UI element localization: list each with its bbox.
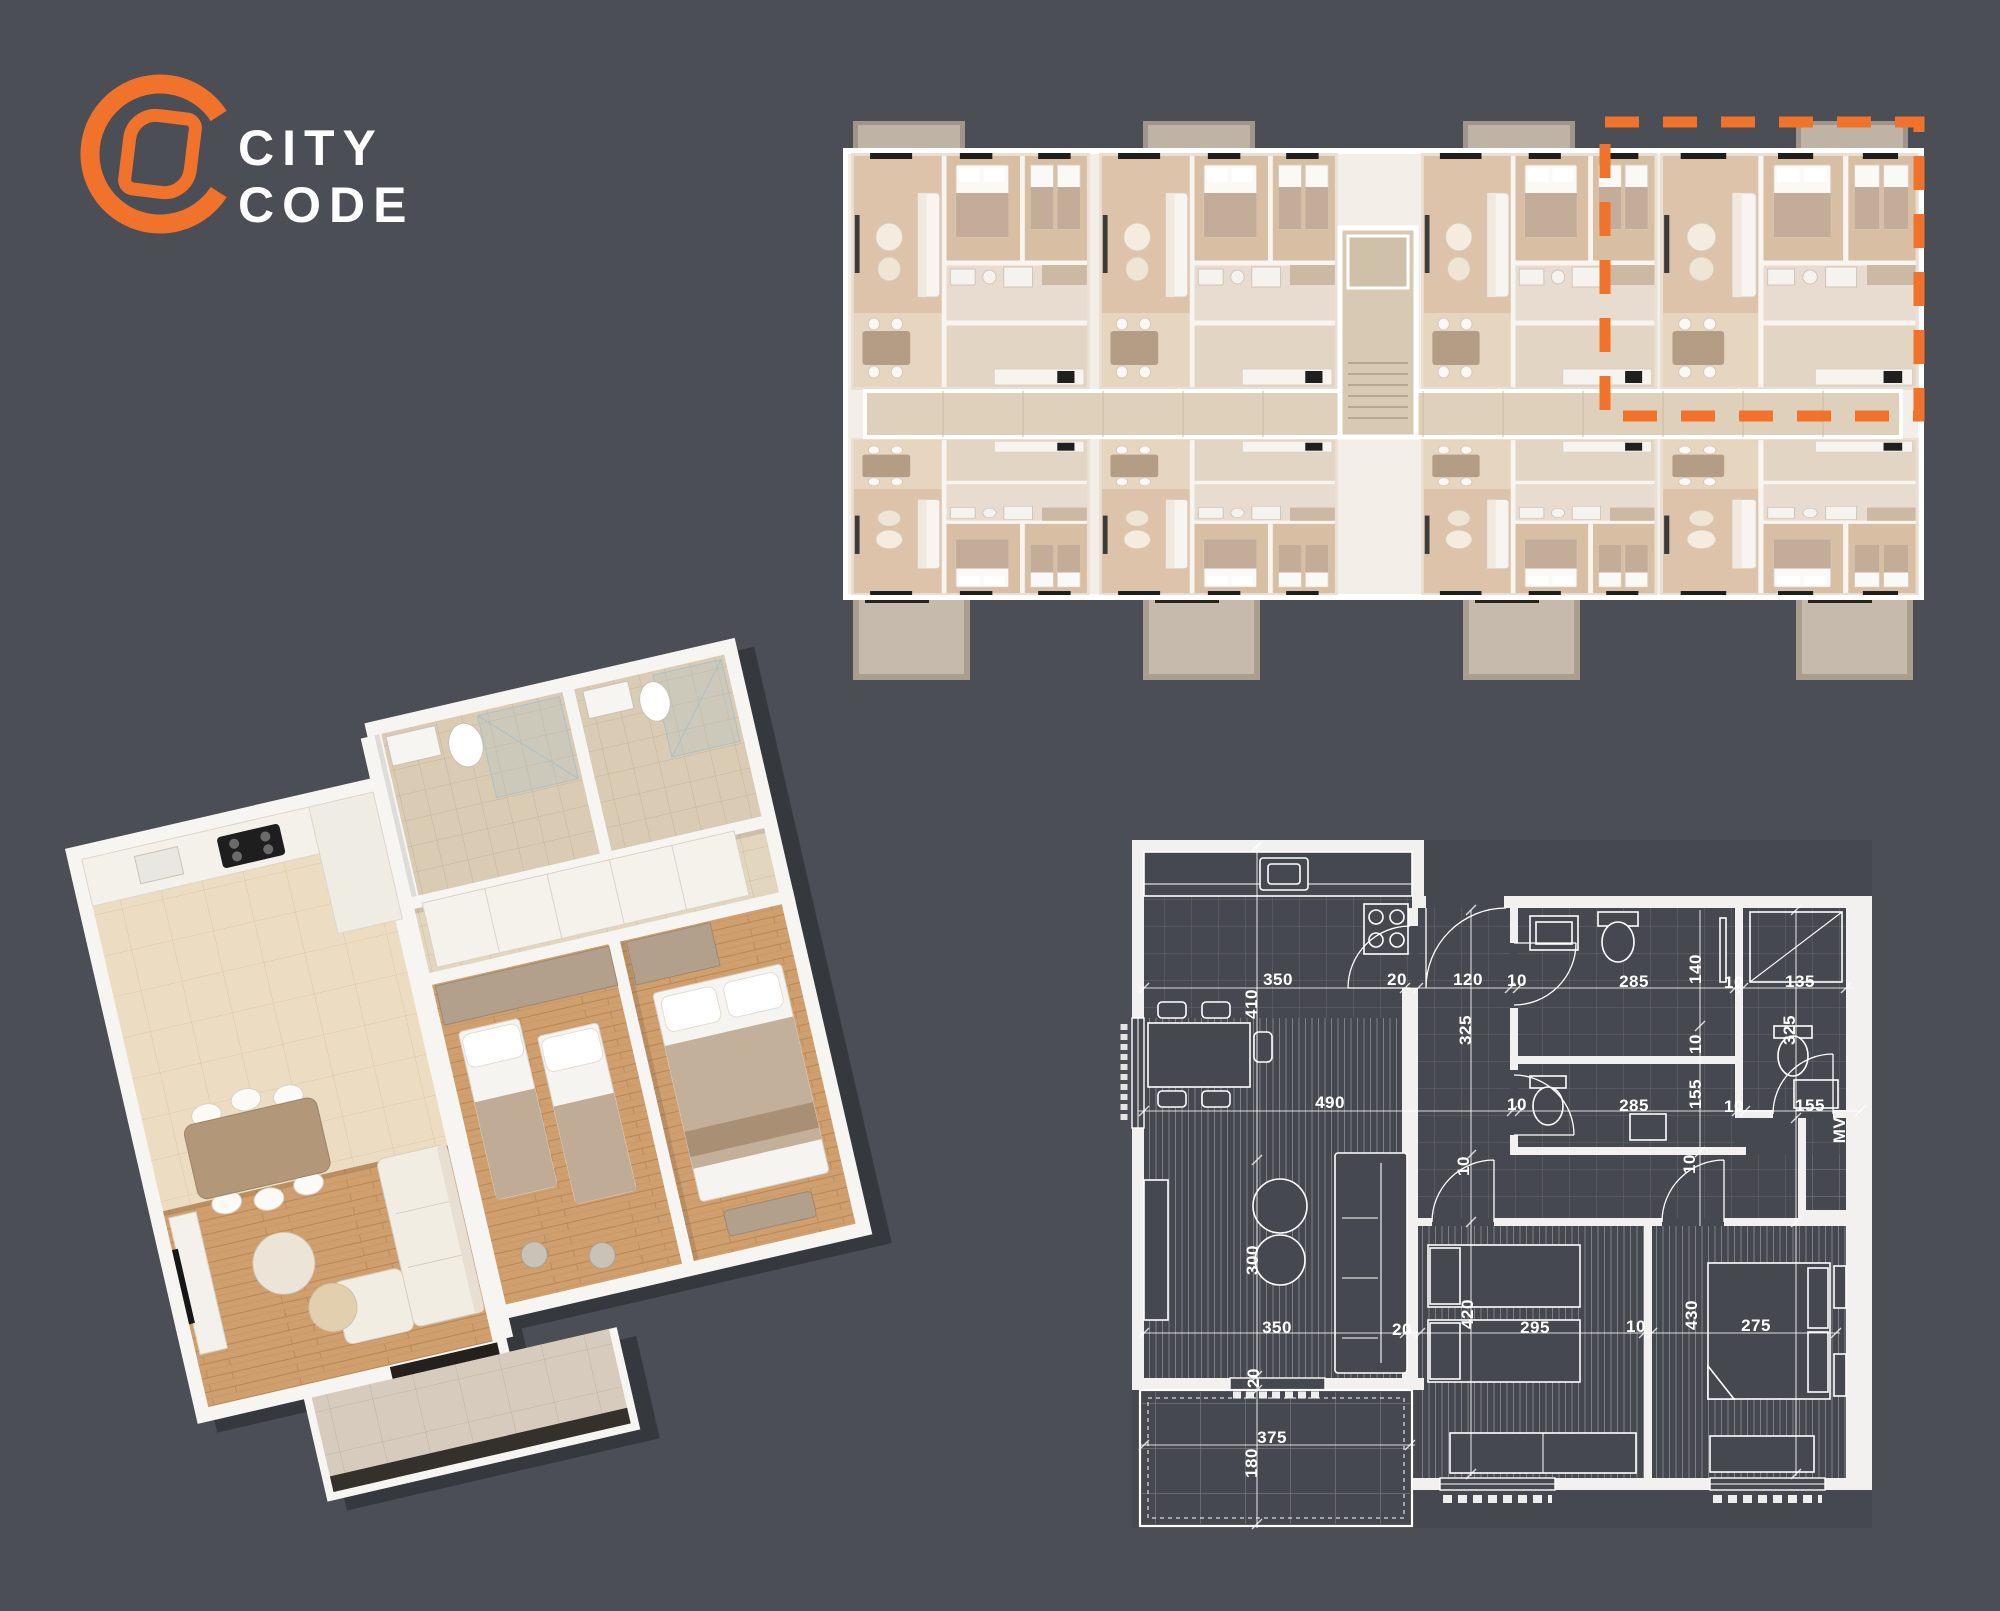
apartment-unit <box>1421 438 1657 595</box>
apartment-unit <box>851 153 1090 390</box>
logo-text-city: CITY <box>238 120 414 177</box>
technical-floor-plan: 3504102012010285140101353253254901028510… <box>1110 818 1890 1548</box>
apartment-unit <box>1099 153 1338 390</box>
apartment-3d-render <box>28 625 928 1540</box>
citycode-logo-mark <box>80 72 250 242</box>
logo-ring-icon <box>90 84 219 224</box>
sink <box>1630 1114 1666 1140</box>
apartment-unit <box>1660 438 1919 595</box>
apartment-unit <box>1660 153 1919 390</box>
coffee-table <box>1255 1235 1305 1285</box>
building-floor-plan <box>843 115 1925 680</box>
tv-board <box>1144 1180 1168 1320</box>
dining-table <box>1148 1023 1250 1087</box>
sink <box>1794 1080 1838 1108</box>
apartment-unit <box>1099 438 1338 595</box>
nightstand <box>1834 1354 1846 1396</box>
logo-text-code: CODE <box>238 177 414 234</box>
blueprint-drawing <box>1110 818 1890 1548</box>
towel-rail <box>1720 918 1726 982</box>
nightstand <box>1834 1266 1846 1308</box>
sofa <box>1335 1153 1407 1373</box>
dresser <box>1710 1436 1814 1472</box>
logo-stone-icon <box>124 112 197 195</box>
apartment-unit <box>1421 153 1657 390</box>
building-bottom-balconies <box>853 594 1913 680</box>
render-rotated-group <box>53 634 923 1539</box>
building-stair-core <box>1340 228 1416 437</box>
brochure-canvas: CITY CODE <box>0 0 2000 1611</box>
apartment-unit <box>851 438 1090 595</box>
coffee-table <box>1253 1179 1307 1233</box>
toilet <box>1602 922 1634 962</box>
citycode-logo: CITY CODE <box>80 72 560 262</box>
toilet <box>1533 1087 1563 1125</box>
logo-text: CITY CODE <box>238 120 414 234</box>
